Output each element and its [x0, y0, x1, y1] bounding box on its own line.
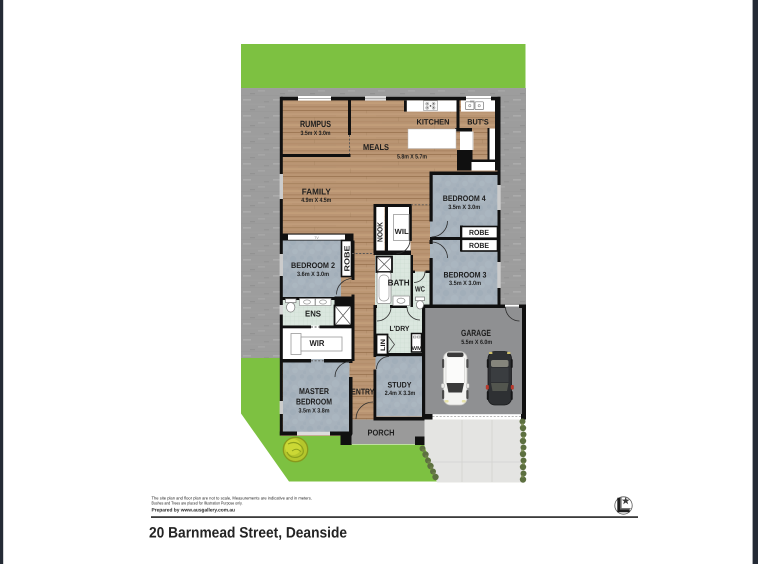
svg-text:WIL: WIL [395, 227, 409, 236]
svg-text:BEDROOM 4: BEDROOM 4 [443, 194, 486, 203]
svg-text:WM: WM [412, 346, 422, 352]
svg-text:BEDROOM 3: BEDROOM 3 [444, 270, 487, 279]
svg-text:4.9m X 4.5m: 4.9m X 4.5m [301, 197, 331, 204]
svg-text:PORCH: PORCH [368, 428, 395, 438]
svg-text:ENTRY: ENTRY [351, 387, 374, 397]
svg-text:ROBE: ROBE [342, 246, 351, 272]
svg-text:3.5m X 3.0m: 3.5m X 3.0m [448, 204, 480, 211]
svg-text:STUDY: STUDY [388, 381, 413, 390]
svg-text:ROBE: ROBE [469, 241, 489, 250]
svg-text:Bushes and Trees are placed fo: Bushes and Trees are placed for Illustra… [152, 501, 243, 506]
svg-text:WC: WC [415, 285, 425, 294]
svg-text:3.5m X 3.0m: 3.5m X 3.0m [301, 130, 331, 137]
svg-text:3.5m X 3.0m: 3.5m X 3.0m [449, 280, 481, 287]
svg-text:Prepared by www.ausgallery.com: Prepared by www.ausgallery.com.au [152, 508, 236, 514]
svg-text:WIR: WIR [310, 338, 325, 348]
svg-text:5.5m X 6.0m: 5.5m X 6.0m [461, 339, 492, 346]
svg-text:L'DRY: L'DRY [390, 324, 410, 333]
svg-text:BEDROOM 2: BEDROOM 2 [291, 261, 335, 270]
svg-text:NOOK: NOOK [375, 221, 384, 242]
svg-text:KITCHEN: KITCHEN [417, 117, 450, 126]
svg-text:3.6m X 3.0m: 3.6m X 3.0m [297, 271, 329, 278]
svg-text:TV: TV [314, 236, 319, 240]
svg-text:ENS: ENS [305, 309, 321, 319]
svg-text:ROBE: ROBE [469, 228, 489, 237]
svg-text:BUT'S: BUT'S [467, 117, 489, 126]
svg-text:3.5m X 3.8m: 3.5m X 3.8m [299, 407, 330, 414]
svg-text:RUMPUS: RUMPUS [300, 119, 331, 129]
svg-text:20 Barnmead Street, Deanside: 20 Barnmead Street, Deanside [149, 525, 347, 542]
svg-text:GARAGE: GARAGE [461, 328, 491, 338]
svg-text:2.4m X 3.3m: 2.4m X 3.3m [385, 390, 416, 397]
svg-text:MASTER: MASTER [299, 386, 329, 396]
svg-text:LIN: LIN [380, 339, 387, 351]
svg-text:MEALS: MEALS [363, 142, 389, 152]
svg-text:5.8m X 5.7m: 5.8m X 5.7m [397, 154, 427, 161]
svg-text:BEDROOM: BEDROOM [296, 397, 332, 407]
svg-text:BATH: BATH [388, 278, 410, 288]
svg-text:FAMILY: FAMILY [302, 187, 331, 197]
